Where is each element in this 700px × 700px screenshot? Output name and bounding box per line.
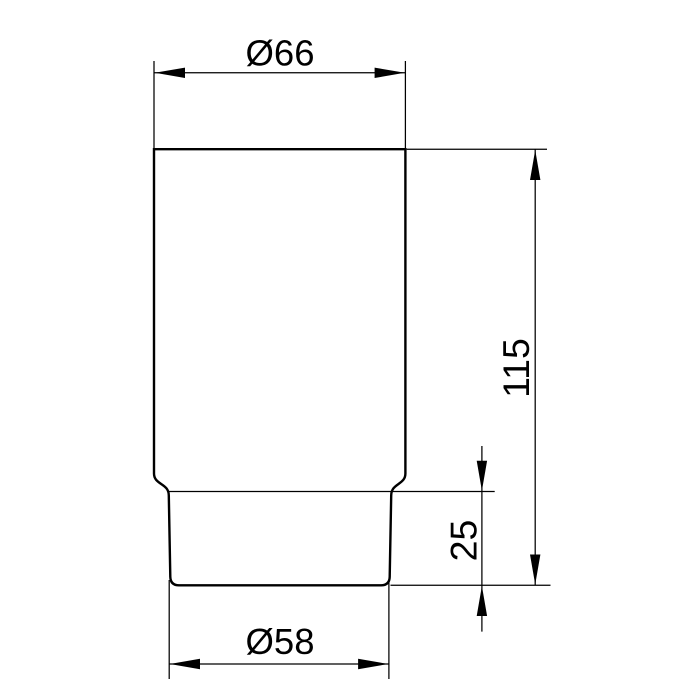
svg-text:115: 115 bbox=[495, 338, 537, 398]
svg-text:25: 25 bbox=[443, 520, 485, 562]
svg-text:Ø58: Ø58 bbox=[246, 621, 315, 662]
svg-text:Ø66: Ø66 bbox=[246, 33, 315, 74]
